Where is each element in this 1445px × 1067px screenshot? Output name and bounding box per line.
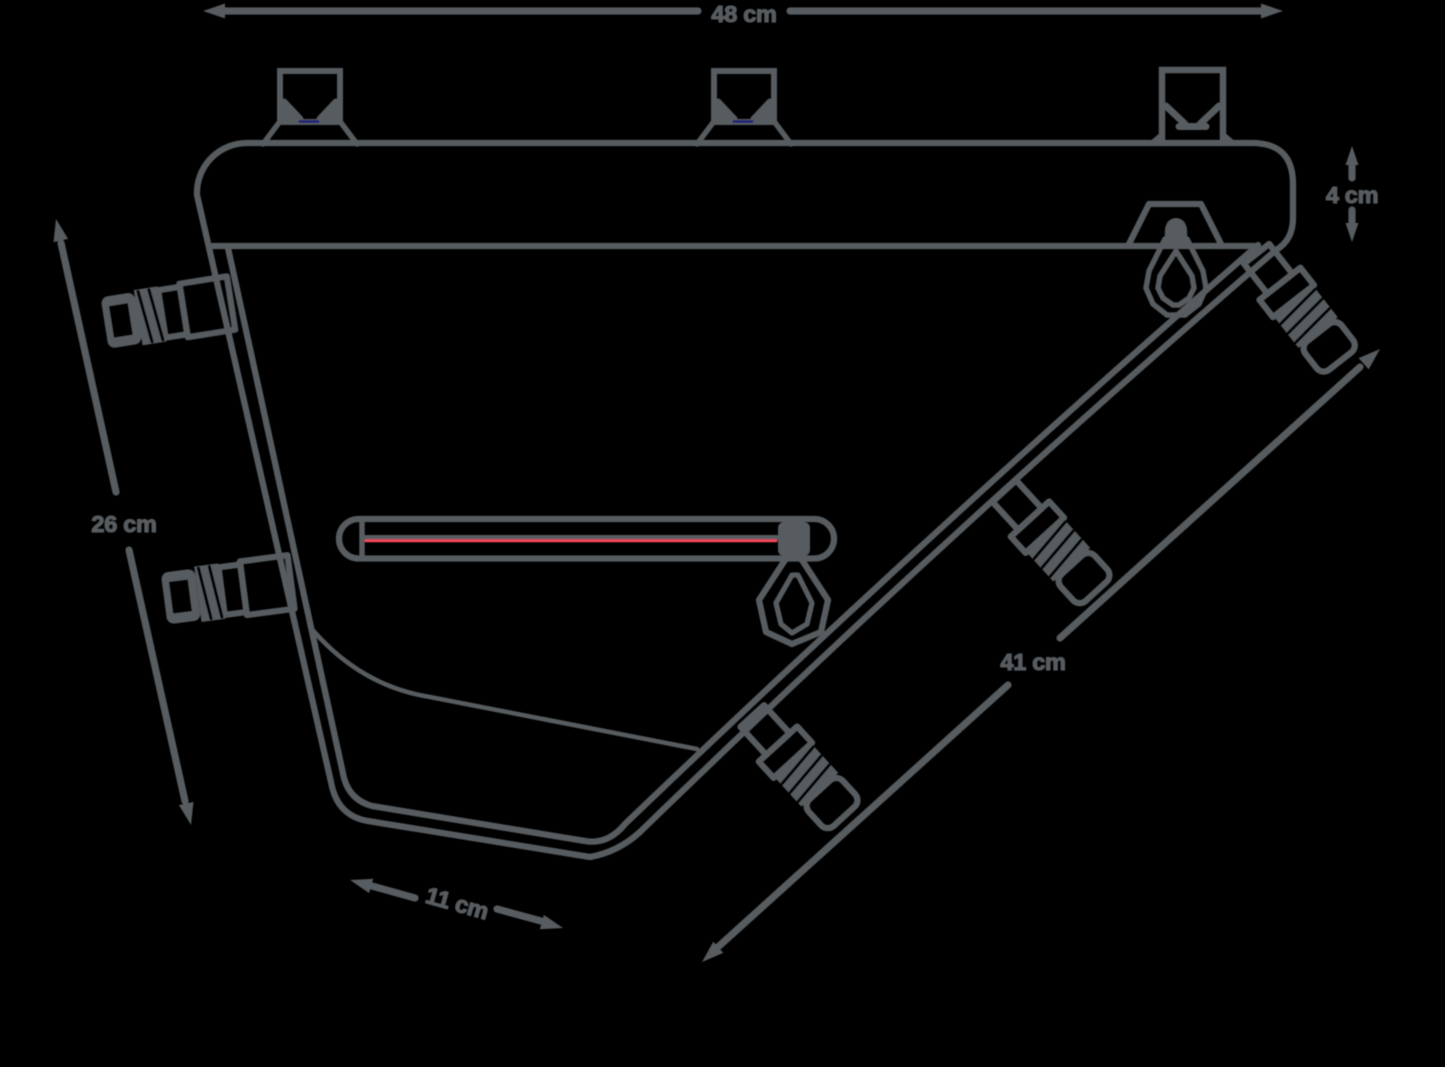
svg-text:4 cm: 4 cm <box>1326 182 1378 208</box>
svg-text:26 cm: 26 cm <box>91 511 156 537</box>
svg-text:48 cm: 48 cm <box>711 1 776 27</box>
svg-text:41 cm: 41 cm <box>1000 649 1065 675</box>
